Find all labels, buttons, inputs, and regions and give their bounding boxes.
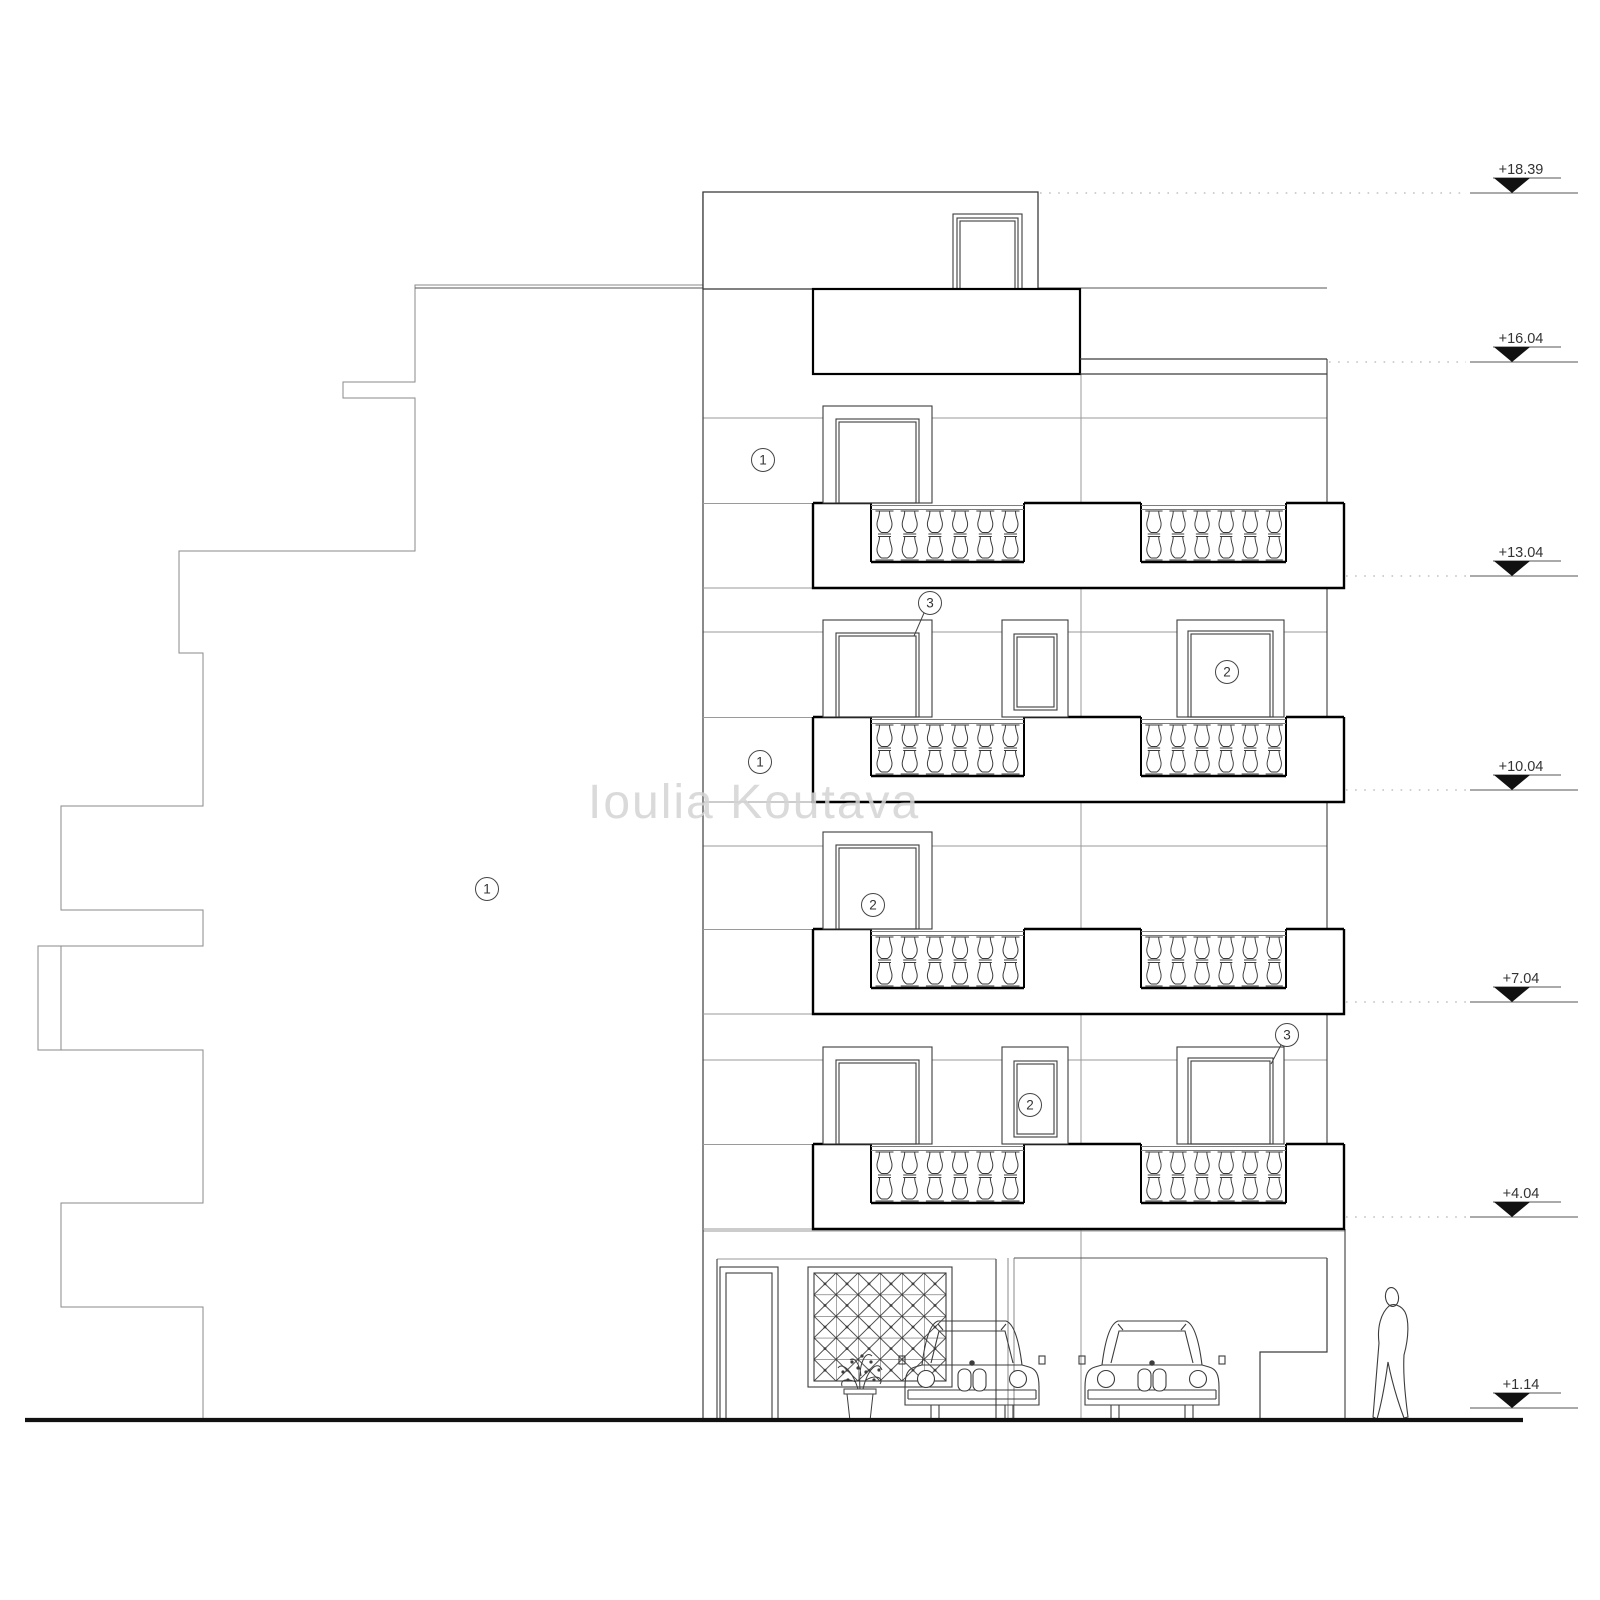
person-figure: [1373, 1287, 1408, 1419]
balcony-band-floor-5: [703, 503, 1344, 588]
car-right: [1079, 1321, 1225, 1420]
svg-text:2: 2: [1026, 1098, 1034, 1113]
garage-step: [1260, 1258, 1327, 1420]
ground-floor: [717, 1258, 1327, 1421]
svg-text:+16.04: +16.04: [1499, 331, 1544, 347]
level-marker-13-04: +13.04: [1346, 545, 1578, 576]
right-bay-openings: [1177, 620, 1284, 1144]
svg-text:+1.14: +1.14: [1503, 1377, 1540, 1393]
watermark-text: Ioulia Koutava: [588, 776, 920, 829]
svg-text:2: 2: [869, 898, 877, 913]
svg-text:2: 2: [1223, 665, 1231, 680]
callout-1-top-floor: 1: [752, 449, 775, 472]
balcony-band-floor-3: [703, 929, 1344, 1014]
svg-text:+10.04: +10.04: [1499, 759, 1544, 775]
balcony-band-floor-2: [703, 1144, 1344, 1229]
svg-text:+4.04: +4.04: [1503, 1186, 1540, 1202]
svg-text:+7.04: +7.04: [1503, 971, 1540, 987]
roof-stair-housing: [415, 192, 1327, 374]
svg-text:1: 1: [756, 755, 764, 770]
svg-text:3: 3: [1283, 1028, 1291, 1043]
callout-2-floor4-right-door: 2: [1216, 661, 1239, 684]
elevation-sheet: Ioulia Koutava +18.39 +16.04 +13.04: [0, 0, 1600, 1600]
penthouse-parapet: [813, 289, 1080, 374]
level-marker-16-04: +16.04: [1329, 331, 1578, 362]
svg-text:1: 1: [759, 453, 767, 468]
svg-text:3: 3: [926, 596, 934, 611]
callout-1-floor4-strip: 1: [749, 751, 772, 774]
level-marker-7-04: +7.04: [1346, 971, 1578, 1002]
svg-text:1: 1: [483, 882, 491, 897]
roof-door: [953, 214, 1022, 289]
callout-1-side-wall: 1: [476, 878, 499, 901]
level-marker-10-04: +10.04: [1346, 759, 1578, 790]
callout-2-floor2-window: 2: [1019, 1094, 1042, 1117]
callout-2-floor3-door: 2: [862, 894, 885, 917]
level-marker-18-39: +18.39: [1040, 162, 1578, 193]
level-marker-4-04: +4.04: [1346, 1186, 1578, 1217]
svg-text:+18.39: +18.39: [1499, 162, 1544, 178]
centre-windows: [1002, 620, 1068, 1144]
adjacent-building-outline: [38, 285, 703, 1420]
level-marker-1-14: +1.14: [1470, 1377, 1578, 1408]
svg-text:+13.04: +13.04: [1499, 545, 1544, 561]
building-elevation-drawing: Ioulia Koutava +18.39 +16.04 +13.04: [0, 0, 1600, 1600]
entrance-door: [720, 1267, 778, 1421]
